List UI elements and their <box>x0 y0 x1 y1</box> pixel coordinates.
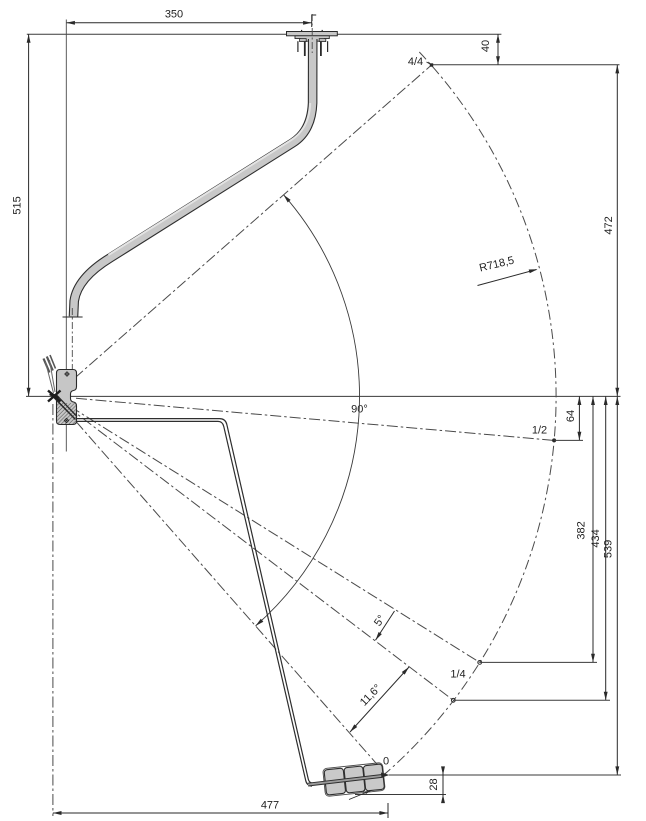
svg-text:382: 382 <box>576 521 588 539</box>
svg-text:28: 28 <box>428 778 440 790</box>
svg-text:515: 515 <box>12 196 24 214</box>
svg-text:40: 40 <box>480 40 492 52</box>
svg-text:1/2: 1/2 <box>532 425 547 437</box>
svg-text:0: 0 <box>383 756 389 768</box>
svg-text:1/4: 1/4 <box>450 669 465 681</box>
svg-text:350: 350 <box>165 9 183 21</box>
svg-text:539: 539 <box>603 540 615 558</box>
svg-text:472: 472 <box>603 216 615 234</box>
svg-text:11,6°: 11,6° <box>358 682 384 708</box>
svg-text:64: 64 <box>565 410 577 422</box>
svg-text:434: 434 <box>590 529 602 547</box>
svg-text:477: 477 <box>261 800 279 812</box>
svg-text:R718,5: R718,5 <box>478 255 515 275</box>
svg-text:4/4: 4/4 <box>408 56 423 68</box>
svg-text:5°: 5° <box>372 613 388 628</box>
